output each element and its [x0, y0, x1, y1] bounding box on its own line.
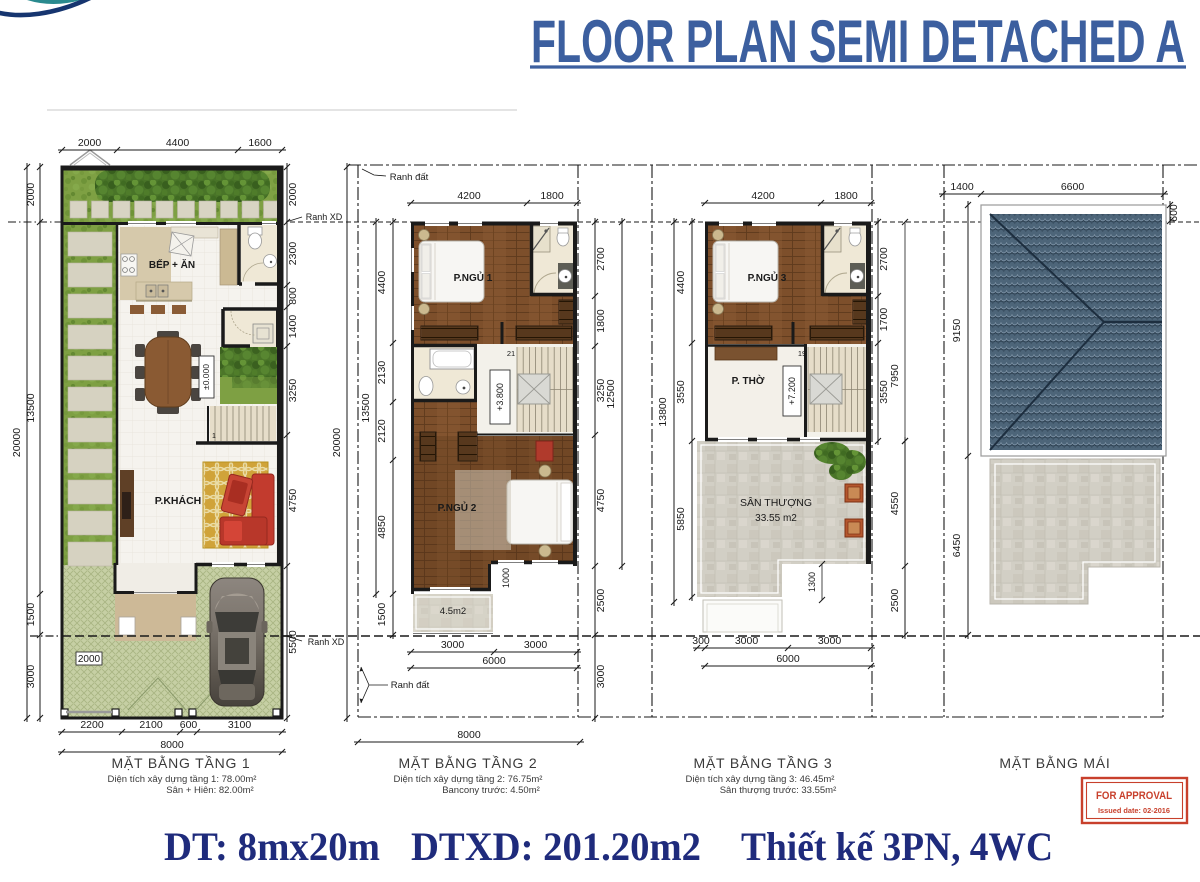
svg-text:MẶT BẰNG TẦNG 2: MẶT BẰNG TẦNG 2: [398, 754, 537, 771]
svg-text:4200: 4200: [457, 190, 481, 202]
svg-text:13800: 13800: [657, 397, 669, 426]
svg-text:300: 300: [692, 635, 710, 647]
svg-text:1800: 1800: [595, 309, 607, 333]
svg-text:P.NGỦ 2: P.NGỦ 2: [438, 501, 477, 514]
svg-text:P.NGỦ 1: P.NGỦ 1: [454, 271, 493, 284]
svg-text:33.55 m2: 33.55 m2: [755, 513, 797, 524]
svg-text:8000: 8000: [457, 729, 481, 741]
svg-text:+7.200: +7.200: [787, 377, 797, 405]
svg-text:2500: 2500: [889, 589, 901, 613]
svg-text:1800: 1800: [834, 190, 858, 202]
svg-text:2700: 2700: [595, 247, 607, 271]
svg-text:800: 800: [287, 287, 299, 305]
svg-text:1600: 1600: [248, 137, 272, 149]
svg-text:1800: 1800: [540, 190, 564, 202]
svg-text:2500: 2500: [595, 589, 607, 613]
svg-text:+3.800: +3.800: [495, 383, 505, 411]
svg-text:5500: 5500: [287, 630, 299, 654]
svg-text:3000: 3000: [818, 635, 842, 647]
svg-text:6000: 6000: [482, 655, 506, 667]
svg-text:13500: 13500: [360, 393, 372, 422]
svg-text:FLOOR PLAN SEMI DETACHED A: FLOOR PLAN SEMI DETACHED A: [531, 8, 1185, 75]
svg-text:Sân + Hiên: 82.00m²: Sân + Hiên: 82.00m²: [166, 785, 253, 796]
svg-text:1300: 1300: [807, 572, 817, 592]
svg-text:Issued date: 02-2016: Issued date: 02-2016: [1098, 806, 1170, 815]
svg-text:Sân thượng trước: 33.55m²: Sân thượng trước: 33.55m²: [720, 785, 837, 796]
svg-text:20000: 20000: [331, 428, 343, 457]
svg-text:4550: 4550: [889, 492, 901, 516]
svg-text:2000: 2000: [78, 137, 102, 149]
svg-text:4850: 4850: [376, 515, 388, 539]
svg-text:Diện tích xây dựng tầng 3: 46.: Diện tích xây dựng tầng 3: 46.45m²: [686, 774, 835, 785]
svg-text:4200: 4200: [751, 190, 775, 202]
svg-text:2700: 2700: [878, 247, 890, 271]
svg-text:FOR APPROVAL: FOR APPROVAL: [1096, 790, 1172, 802]
svg-text:4400: 4400: [376, 271, 388, 295]
svg-text:P.KHÁCH: P.KHÁCH: [155, 494, 201, 507]
svg-text:Diện tích xây dựng tầng 2: 76.: Diện tích xây dựng tầng 2: 76.75m²: [394, 774, 543, 785]
svg-text:MẶT BẰNG TẦNG 3: MẶT BẰNG TẦNG 3: [693, 754, 832, 771]
svg-text:Ranh đất: Ranh đất: [390, 172, 429, 183]
svg-text:12500: 12500: [605, 379, 617, 408]
svg-text:8000: 8000: [160, 739, 184, 751]
svg-text:4750: 4750: [595, 489, 607, 513]
svg-text:2120: 2120: [376, 419, 388, 443]
svg-text:4400: 4400: [166, 137, 190, 149]
svg-text:2100: 2100: [139, 719, 163, 731]
svg-text:±0.000: ±0.000: [201, 364, 211, 390]
svg-text:2000: 2000: [287, 183, 299, 207]
svg-text:3000: 3000: [735, 635, 759, 647]
svg-text:3250: 3250: [287, 379, 299, 403]
svg-text:2000: 2000: [78, 654, 101, 665]
svg-text:MẶT BẰNG TẦNG 1: MẶT BẰNG TẦNG 1: [111, 754, 250, 771]
svg-text:1500: 1500: [376, 603, 388, 627]
svg-text:BẾP + ĂN: BẾP + ĂN: [149, 258, 195, 271]
svg-text:Ranh XD: Ranh XD: [308, 637, 345, 647]
svg-text:1: 1: [212, 433, 216, 440]
svg-text:2130: 2130: [376, 361, 388, 385]
svg-text:1400: 1400: [287, 315, 299, 339]
svg-text:1000: 1000: [501, 568, 511, 588]
svg-text:3000: 3000: [595, 665, 607, 689]
svg-text:20000: 20000: [11, 428, 23, 457]
svg-text:21: 21: [507, 349, 515, 358]
svg-text:Thiết kế 3PN, 4WC: Thiết kế 3PN, 4WC: [741, 824, 1053, 869]
svg-text:P.NGỦ 3: P.NGỦ 3: [748, 271, 787, 284]
svg-text:Bancony trước: 4.50m²: Bancony trước: 4.50m²: [442, 785, 540, 796]
svg-text:2300: 2300: [287, 242, 299, 266]
svg-text:4.5m2: 4.5m2: [440, 606, 466, 617]
svg-text:9150: 9150: [951, 319, 963, 343]
svg-text:7950: 7950: [889, 364, 901, 388]
svg-text:Diện tích xây dựng tầng 1: 78.: Diện tích xây dựng tầng 1: 78.00m²: [108, 774, 257, 785]
svg-text:600: 600: [1168, 204, 1180, 222]
svg-text:Ranh đất: Ranh đất: [391, 680, 430, 691]
svg-text:4750: 4750: [287, 489, 299, 513]
svg-text:Ranh XD: Ranh XD: [306, 212, 343, 222]
svg-text:6600: 6600: [1061, 181, 1085, 193]
svg-text:3000: 3000: [441, 639, 465, 651]
svg-text:600: 600: [180, 719, 198, 731]
svg-text:SÂN THƯỢNG: SÂN THƯỢNG: [740, 496, 812, 509]
svg-text:1400: 1400: [950, 181, 974, 193]
svg-text:3000: 3000: [524, 639, 548, 651]
svg-text:6450: 6450: [951, 534, 963, 558]
svg-text:6000: 6000: [776, 653, 800, 665]
svg-text:MẶT BẰNG MÁI: MẶT BẰNG MÁI: [999, 754, 1110, 771]
svg-text:4400: 4400: [675, 271, 687, 295]
svg-text:3550: 3550: [675, 380, 687, 404]
svg-text:5850: 5850: [675, 507, 687, 531]
svg-text:1700: 1700: [878, 308, 890, 332]
svg-text:2200: 2200: [80, 719, 104, 731]
svg-text:DTXD: 201.20m2: DTXD: 201.20m2: [411, 824, 701, 869]
svg-text:DT: 8mx20m: DT: 8mx20m: [164, 824, 380, 869]
svg-text:3100: 3100: [228, 719, 252, 731]
svg-text:P. THỜ: P. THỜ: [732, 374, 765, 387]
